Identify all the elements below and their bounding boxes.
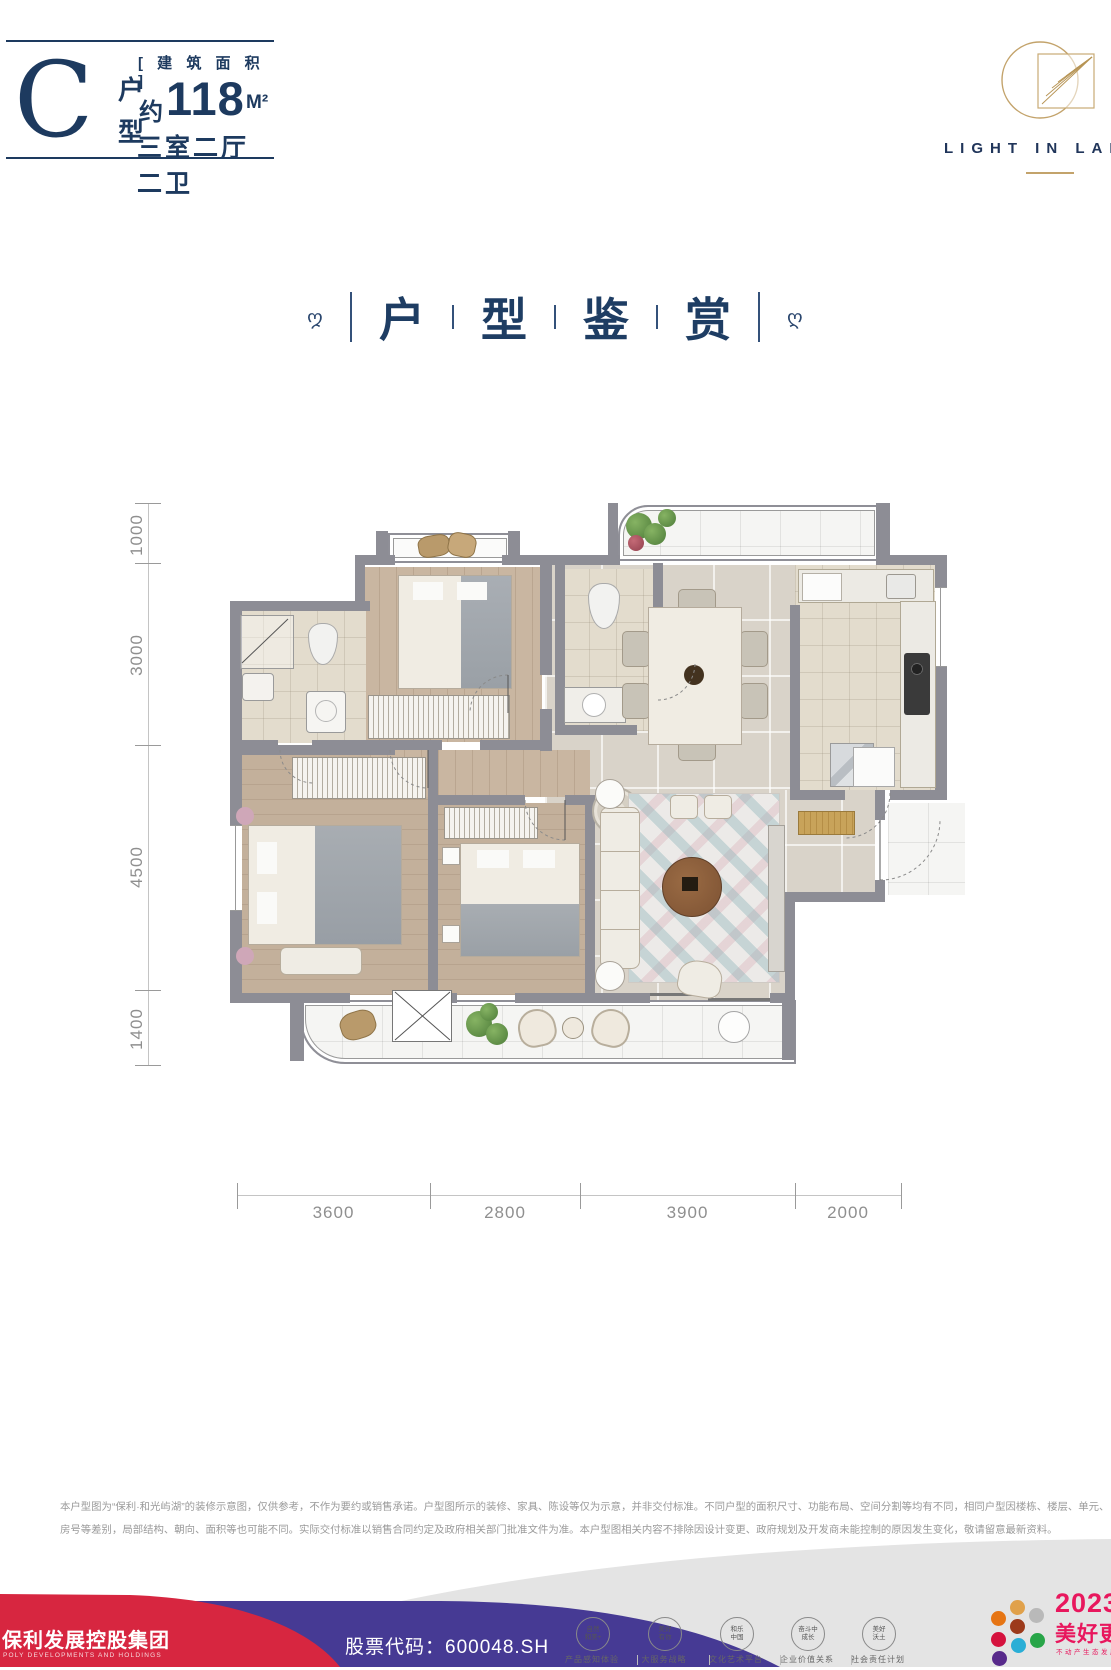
title-divider — [452, 305, 454, 329]
layout-description: 三室二厅二卫 — [137, 128, 274, 200]
dim-label-left: 3000 — [127, 634, 147, 676]
campaign-year: 2023 — [1055, 1588, 1111, 1619]
badge-caption: 文化艺术平台 — [696, 1654, 776, 1665]
footer-stock-code: 股票代码：600048.SH — [345, 1632, 549, 1659]
dot — [991, 1632, 1006, 1647]
dim-label-left: 1000 — [127, 514, 147, 556]
footer-company-en: POLY DEVELOPMENTS AND HOLDINGS — [3, 1652, 162, 1659]
floor-plan: 1000 3000 4500 1400 3600 2800 3900 2000 — [130, 495, 965, 1240]
flyer-page: { "header": { "type_letter": "C", "type_… — [0, 0, 1111, 1667]
brand-logo: LIGHT IN LAKE — [940, 40, 1105, 180]
title-char: 赏 — [685, 284, 731, 350]
dim-tick — [135, 1065, 161, 1066]
dot — [1010, 1600, 1025, 1615]
badge-line: 和乐 — [731, 1626, 744, 1634]
badge-caption: 大服务战略 — [624, 1654, 704, 1665]
brand-logo-text: LIGHT IN LAKE — [944, 140, 1111, 157]
title-char: 户 — [379, 284, 425, 350]
footer-company: 保利发展控股集团 — [2, 1624, 170, 1653]
dot — [1029, 1608, 1044, 1623]
dim-label-left: 1400 — [127, 1008, 147, 1050]
section-title: ღ 户 型 鉴 赏 ღ — [255, 288, 855, 346]
area-prefix: 约 — [139, 92, 163, 127]
badge-line: 奋斗中 — [798, 1626, 818, 1634]
dim-label-left: 4500 — [127, 846, 147, 888]
dim-ruler-bottom — [237, 1195, 902, 1196]
badge-separator — [709, 1655, 710, 1665]
title-divider — [656, 305, 658, 329]
badge-caption: 社会责任计划 — [838, 1654, 918, 1665]
footer-badge: 奋斗中 成长 — [791, 1617, 825, 1651]
footer-badge: 和乐 中国 — [720, 1617, 754, 1651]
dim-label-bottom: 2000 — [795, 1203, 901, 1223]
badge-caption: 企业价值关系 — [767, 1654, 847, 1665]
dim-label-bottom: 2800 — [430, 1203, 580, 1223]
footer-badge: 美好 沃土 — [862, 1617, 896, 1651]
title-char: 型 — [481, 284, 527, 350]
dim-tick — [901, 1183, 902, 1209]
campaign-dots-icon — [988, 1598, 1050, 1670]
badge-caption: 产品感知体验 — [552, 1654, 632, 1665]
door-swing-overlay — [130, 495, 965, 1240]
dim-label-bottom: 3600 — [237, 1203, 430, 1223]
badge-line: 美好 — [873, 1626, 886, 1634]
badge-line: 中国 — [731, 1634, 744, 1642]
dot — [1011, 1638, 1026, 1653]
dim-label-bottom: 3900 — [580, 1203, 795, 1223]
badge-line: 和美+ — [585, 1634, 602, 1642]
dot — [1010, 1619, 1025, 1634]
dot — [991, 1611, 1006, 1626]
footer-badge: 自然 和美+ — [576, 1617, 610, 1651]
title-divider-tall — [758, 292, 760, 342]
badge-line: 有你 — [659, 1634, 672, 1642]
badge-line: 自然 — [587, 1626, 600, 1634]
area-value: 118 — [166, 75, 245, 122]
dim-tick — [135, 503, 161, 504]
title-divider-tall — [350, 292, 352, 342]
ornament-right-icon: ღ — [787, 305, 803, 330]
disclaimer-line1: 本户型图为“保利·和光屿湖”的装修示意图，仅供参考，不作为要约或销售承诺。户型图… — [60, 1496, 1109, 1519]
title-divider — [554, 305, 556, 329]
badge-line: 美好 — [659, 1626, 672, 1634]
light-in-lake-icon — [940, 40, 1105, 140]
dim-ruler-left — [148, 503, 149, 1065]
ornament-left-icon: ღ — [307, 305, 323, 330]
header-unit-block: C 户 型 [ 建 筑 面 积 ] 约 118 M² 三室二厅二卫 — [6, 40, 274, 162]
footer-badge: 美好 有你 — [648, 1617, 682, 1651]
badge-separator — [851, 1655, 852, 1665]
dot — [992, 1651, 1007, 1666]
badge-separator — [637, 1655, 638, 1665]
badge-line: 沃土 — [873, 1634, 886, 1642]
unit-type-letter: C — [14, 48, 94, 152]
campaign-subtext: 不动产生态发展平台 — [1056, 1646, 1111, 1656]
area-unit: M² — [246, 92, 268, 114]
dim-tick — [135, 563, 161, 564]
badge-separator — [780, 1655, 781, 1665]
dot — [1030, 1633, 1045, 1648]
brand-logo-underline — [1026, 172, 1074, 174]
campaign-slogan: 美好更新 — [1055, 1618, 1111, 1648]
badge-line: 成长 — [802, 1634, 815, 1642]
dim-tick — [135, 990, 161, 991]
dim-tick — [135, 745, 161, 746]
title-char: 鉴 — [583, 284, 629, 350]
